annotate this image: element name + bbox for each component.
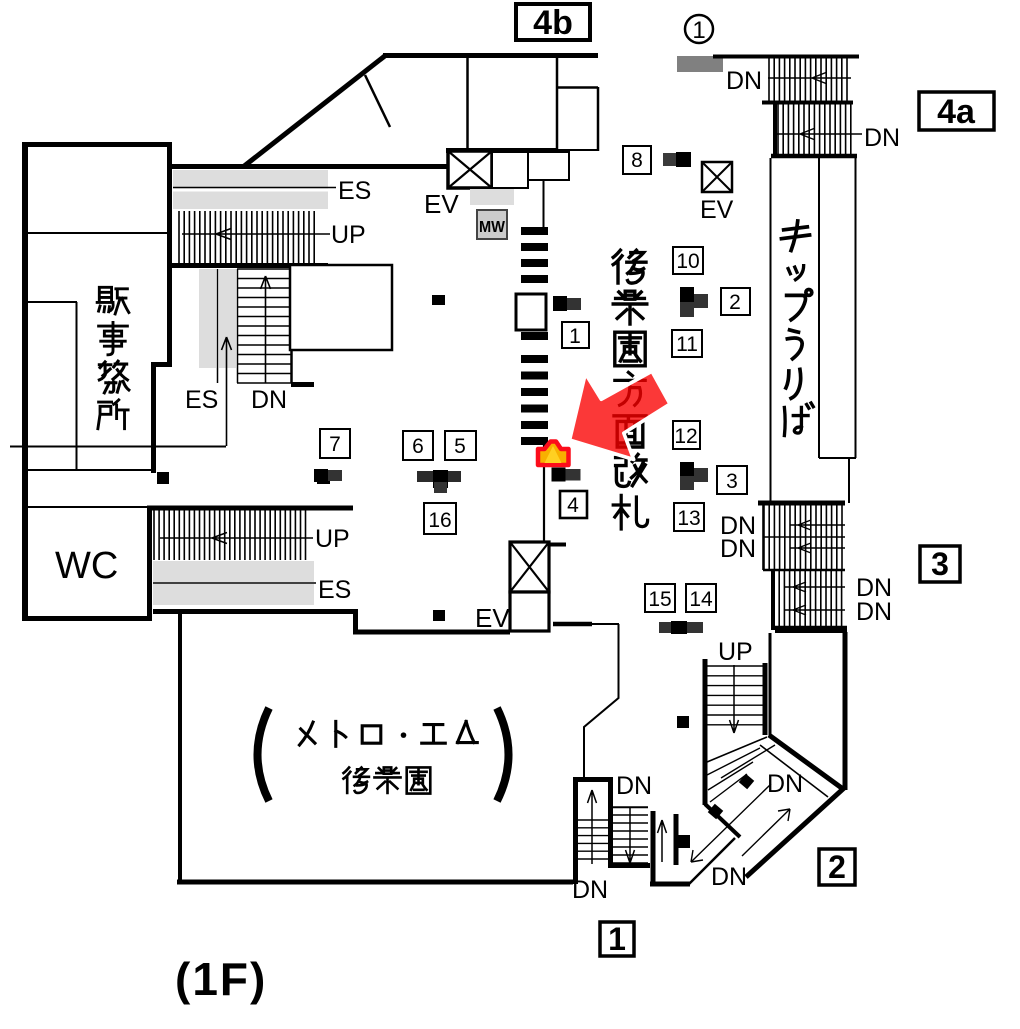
svg-text:16: 16 — [428, 509, 451, 532]
svg-text:6: 6 — [412, 435, 424, 458]
svg-text:13: 13 — [677, 507, 700, 530]
svg-text:UP: UP — [718, 638, 753, 666]
svg-text:1: 1 — [608, 921, 626, 957]
svg-text:8: 8 — [631, 149, 643, 172]
svg-text:5: 5 — [454, 435, 466, 458]
svg-text:DN: DN — [616, 772, 652, 800]
svg-text:UP: UP — [315, 525, 350, 553]
svg-text:ES: ES — [318, 576, 351, 604]
svg-text:ES: ES — [338, 177, 371, 205]
svg-text:DN: DN — [711, 863, 747, 891]
svg-text:DN: DN — [767, 770, 803, 798]
svg-text:DN: DN — [572, 876, 608, 904]
svg-text:MW: MW — [479, 219, 506, 236]
svg-text:DN: DN — [251, 386, 287, 414]
svg-text:4: 4 — [567, 494, 579, 517]
svg-text:DN: DN — [864, 124, 900, 152]
svg-text:WC: WC — [55, 545, 118, 587]
svg-text:7: 7 — [329, 433, 341, 456]
svg-text:DN: DN — [856, 598, 892, 626]
svg-text:14: 14 — [689, 588, 713, 611]
svg-text:ES: ES — [185, 386, 218, 414]
svg-text:EV: EV — [424, 189, 459, 219]
svg-text:1: 1 — [569, 325, 581, 348]
svg-text:(1F): (1F) — [175, 953, 267, 1005]
svg-text:EV: EV — [700, 196, 734, 224]
svg-text:4b: 4b — [533, 4, 573, 42]
svg-text:2: 2 — [729, 291, 741, 314]
svg-text:UP: UP — [331, 221, 366, 249]
svg-text:EV: EV — [475, 603, 510, 633]
svg-text:3: 3 — [931, 546, 949, 582]
svg-text:1: 1 — [692, 17, 705, 44]
svg-text:10: 10 — [676, 250, 699, 273]
svg-text:11: 11 — [676, 333, 698, 356]
svg-text:DN: DN — [726, 67, 762, 95]
svg-text:12: 12 — [674, 425, 697, 448]
svg-text:4a: 4a — [937, 93, 976, 131]
svg-text:2: 2 — [828, 849, 846, 885]
svg-text:DN: DN — [720, 535, 756, 563]
svg-text:3: 3 — [726, 470, 738, 493]
svg-text:15: 15 — [648, 588, 671, 611]
